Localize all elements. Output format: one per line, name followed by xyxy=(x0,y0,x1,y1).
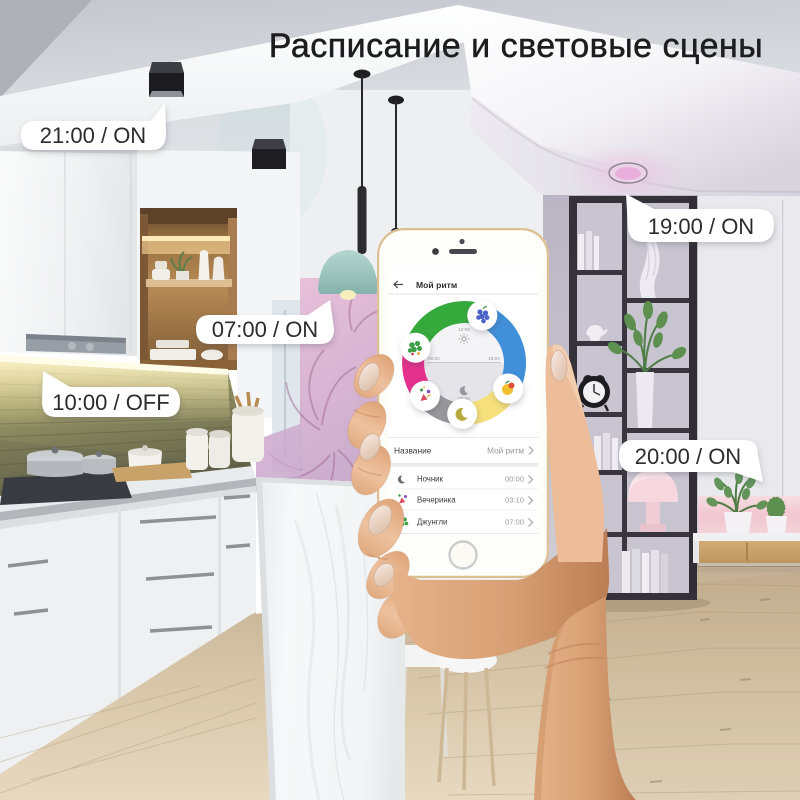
svg-text:20:00 / ON: 20:00 / ON xyxy=(635,444,741,469)
svg-text:Джунгли: Джунгли xyxy=(417,518,447,527)
svg-text:18:00: 18:00 xyxy=(488,356,500,361)
svg-text:Вечеринка: Вечеринка xyxy=(417,496,456,505)
svg-text:10:00 / OFF: 10:00 / OFF xyxy=(52,390,169,415)
svg-text:12:00: 12:00 xyxy=(458,327,470,332)
svg-text:Ночник: Ночник xyxy=(417,475,444,484)
svg-text:03:10: 03:10 xyxy=(505,496,524,505)
svg-text:Расписание и световые сцены: Расписание и световые сцены xyxy=(269,27,763,65)
svg-text:Мой ритм: Мой ритм xyxy=(416,280,457,290)
svg-text:Название: Название xyxy=(394,446,432,456)
svg-text:00:00: 00:00 xyxy=(505,475,524,484)
svg-text:06:00: 06:00 xyxy=(428,356,440,361)
svg-text:21:00 / ON: 21:00 / ON xyxy=(40,123,146,148)
svg-text:07:00: 07:00 xyxy=(505,518,524,527)
svg-text:19:00 / ON: 19:00 / ON xyxy=(648,214,754,239)
svg-text:07:00 / ON: 07:00 / ON xyxy=(212,317,318,342)
svg-text:Мой ритм: Мой ритм xyxy=(487,447,524,456)
